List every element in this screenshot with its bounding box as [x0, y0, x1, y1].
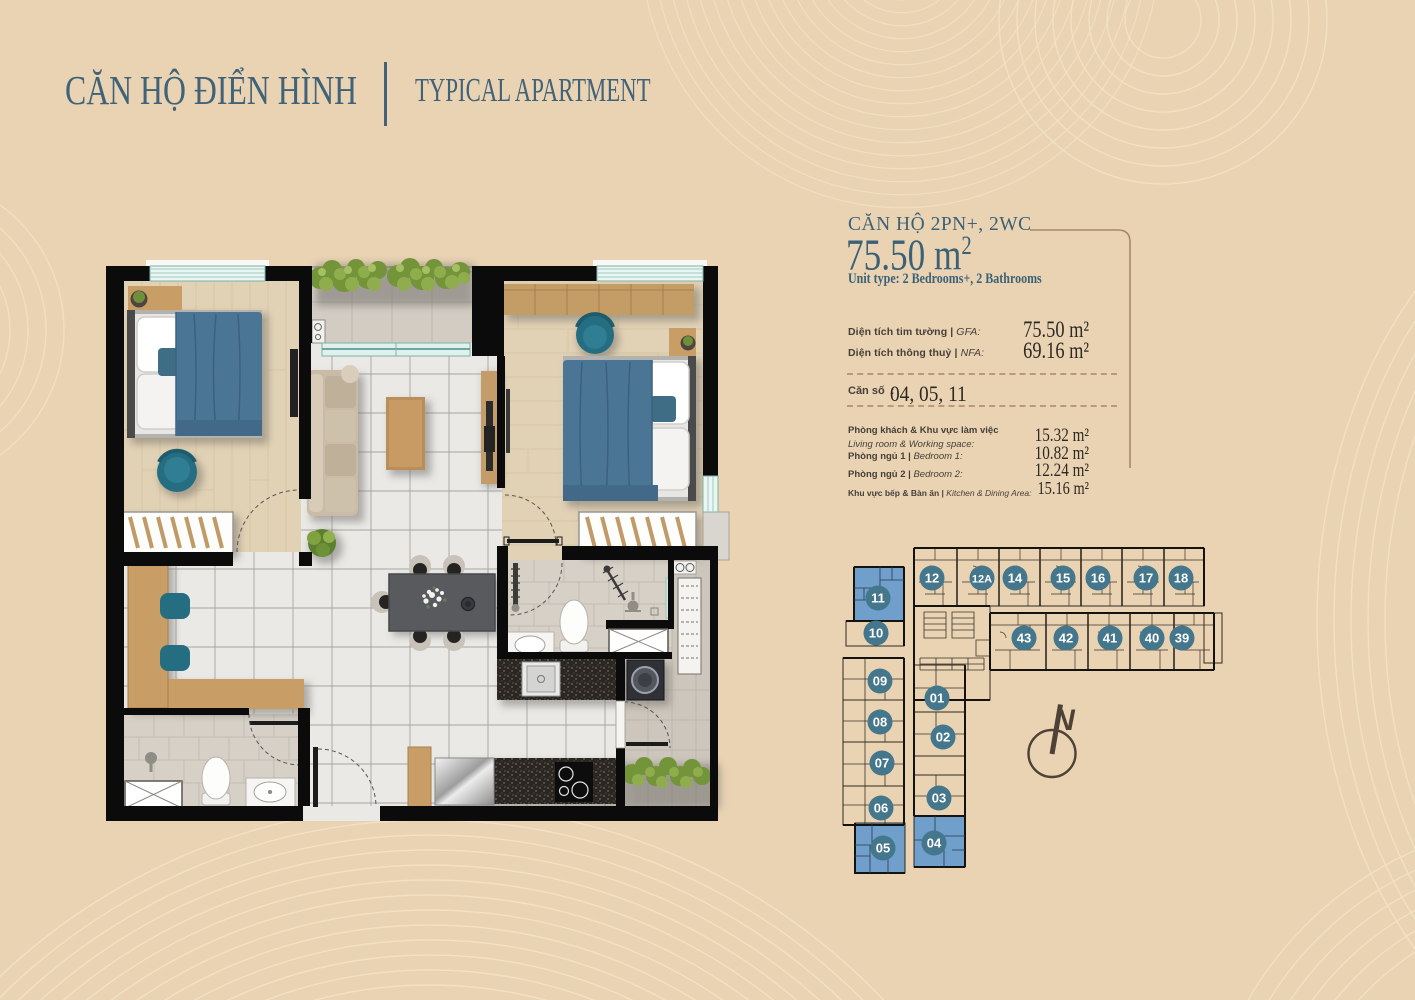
svg-text:09: 09 — [873, 674, 887, 689]
svg-text:18: 18 — [1174, 571, 1188, 586]
svg-text:10: 10 — [869, 626, 883, 641]
svg-text:41: 41 — [1103, 631, 1117, 646]
svg-text:N: N — [1053, 704, 1076, 737]
svg-text:14: 14 — [1008, 571, 1023, 586]
svg-text:03: 03 — [932, 791, 946, 806]
svg-text:42: 42 — [1059, 631, 1073, 646]
svg-text:02: 02 — [936, 730, 950, 745]
svg-text:05: 05 — [876, 841, 890, 856]
svg-text:01: 01 — [930, 691, 944, 706]
svg-text:12: 12 — [925, 571, 939, 586]
svg-text:15: 15 — [1056, 571, 1070, 586]
svg-text:16: 16 — [1091, 571, 1105, 586]
svg-text:04: 04 — [927, 836, 942, 851]
svg-text:11: 11 — [871, 591, 885, 606]
svg-text:08: 08 — [873, 715, 887, 730]
svg-text:39: 39 — [1175, 631, 1189, 646]
svg-text:43: 43 — [1017, 631, 1031, 646]
svg-text:12A: 12A — [972, 574, 992, 586]
svg-text:40: 40 — [1145, 631, 1159, 646]
svg-text:07: 07 — [875, 756, 889, 771]
svg-text:06: 06 — [874, 801, 888, 816]
svg-text:17: 17 — [1139, 571, 1153, 586]
